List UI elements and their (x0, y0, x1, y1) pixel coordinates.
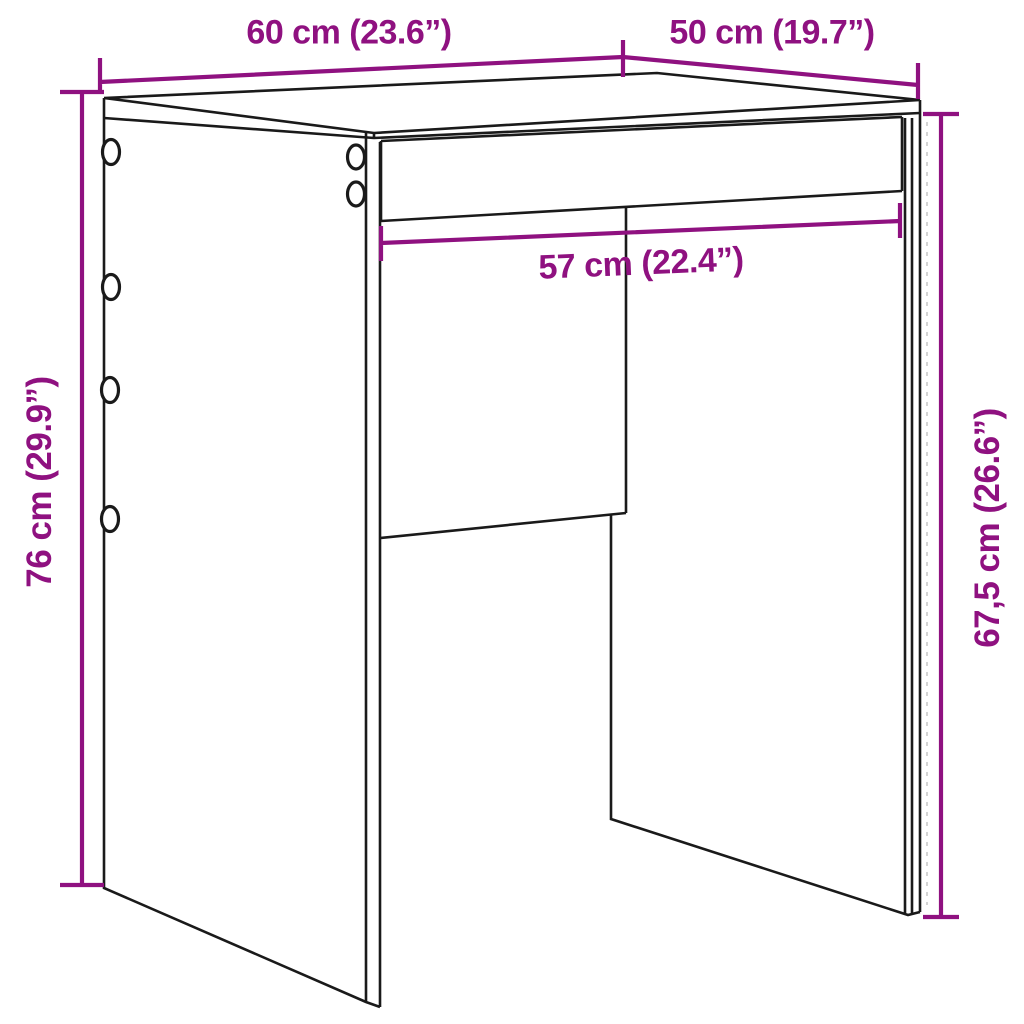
height-dimension-line (60, 92, 104, 885)
height-dimension-label: 76 cm (29.9”) (20, 376, 60, 587)
depth-dimension-label: 50 cm (19.7”) (669, 14, 874, 53)
screw-hole (102, 507, 119, 532)
clearance-dimension-label: 67,5 cm (26.6”) (968, 408, 1008, 648)
screw-hole (348, 145, 365, 169)
furniture-outline (102, 73, 928, 1007)
clearance-dimension-line (923, 114, 959, 917)
depth-dimension-line (623, 57, 918, 99)
width-dimension-label: 60 cm (23.6”) (246, 14, 451, 53)
furniture-line-drawing (0, 0, 1024, 1024)
screw-hole (348, 182, 365, 206)
screw-hole (102, 378, 119, 403)
screw-hole (103, 140, 120, 165)
left-side-panel (104, 98, 380, 1007)
screw-hole (103, 275, 120, 300)
diagram-canvas: 60 cm (23.6”) 50 cm (19.7”) 57 cm (22.4”… (0, 0, 1024, 1024)
dimension-lines (60, 40, 959, 917)
drawer-front-rail (381, 117, 902, 221)
tabletop-top-face (104, 73, 920, 133)
